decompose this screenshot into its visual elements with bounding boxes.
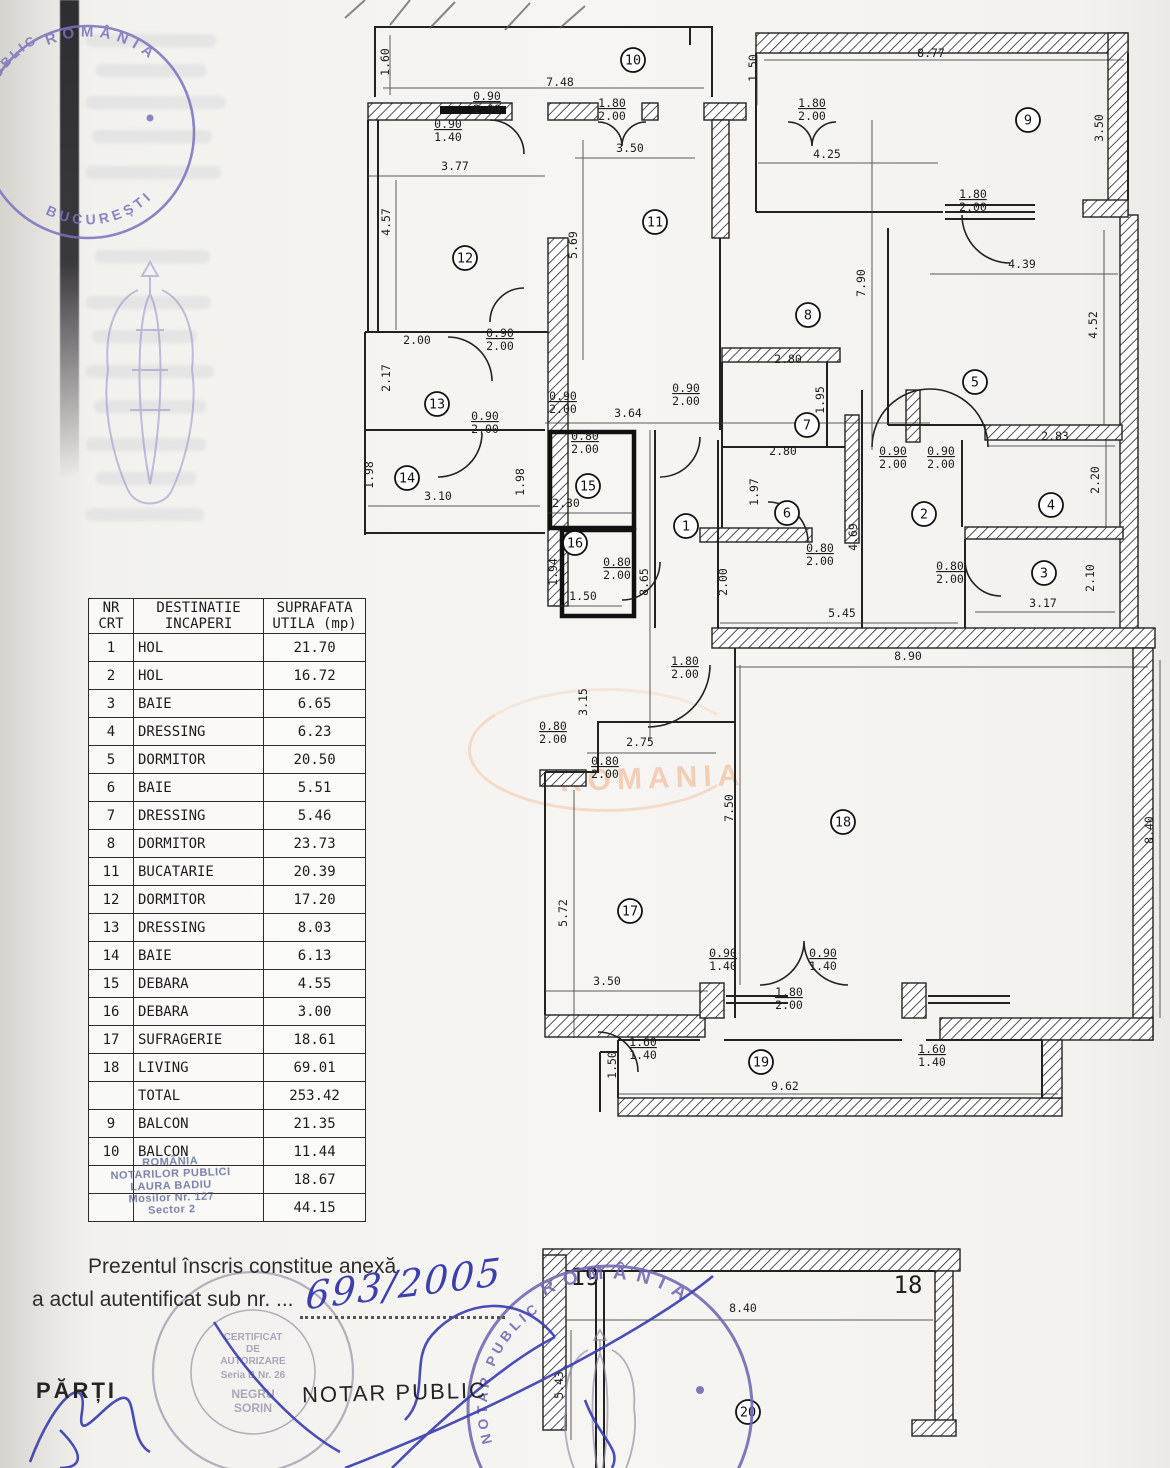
cell-dest: BAIE: [134, 942, 264, 970]
cell-nr: 18: [89, 1054, 134, 1082]
dotted-line: [300, 1316, 505, 1319]
cell-area: 18.61: [264, 1026, 366, 1054]
notary-stamp-top-left: ROMÂNIA NOTAR PUBLIC BUCUREȘTI: [0, 23, 194, 238]
cell-area: 5.51: [264, 774, 366, 802]
table-row: 18LIVING69.01: [89, 1054, 366, 1082]
cell-dest: DRESSING: [134, 914, 264, 942]
cell-nr: 2: [89, 662, 134, 690]
table-row: 11BUCATARIE20.39: [89, 858, 366, 886]
col-header-suprafata: SUPRAFATAUTILA (mp): [264, 599, 366, 634]
col-header-destinatie: DESTINATIEINCAPERI: [134, 599, 264, 634]
table-row: 12DORMITOR17.20: [89, 886, 366, 914]
cell-area: 21.70: [264, 634, 366, 662]
stamp-text-bucuresti: BUCUREȘTI: [44, 187, 156, 227]
table-row: 2HOL16.72: [89, 662, 366, 690]
table-row: TOTAL253.42: [89, 1082, 366, 1110]
cell-nr: 16: [89, 998, 134, 1026]
cell-dest: TOTAL: [134, 1082, 264, 1110]
cell-area: 20.39: [264, 858, 366, 886]
annex-note-line2: a actul autentificat sub nr. ...: [32, 1288, 294, 1312]
cell-area: 3.00: [264, 998, 366, 1026]
table-row: 16DEBARA3.00: [89, 998, 366, 1026]
col-header-nr: NRCRT: [89, 599, 134, 634]
cell-nr: 5: [89, 746, 134, 774]
table-header-row: NRCRT DESTINATIEINCAPERI SUPRAFATAUTILA …: [89, 599, 366, 634]
scanned-notary-floorplan-page: { "colors":{"stamp_purple":"#7a71bd","in…: [0, 0, 1170, 1468]
cell-area: 6.65: [264, 690, 366, 718]
stamp-text-notar: NOTAR PUBLIC: [0, 32, 40, 156]
cert-line: SORIN: [234, 1401, 272, 1415]
cert-line: DE: [246, 1344, 260, 1355]
parti-label: PĂRȚI: [36, 1378, 117, 1404]
cell-nr: 7: [89, 802, 134, 830]
cell-dest: HOL: [134, 634, 264, 662]
cell-area: 253.42: [264, 1082, 366, 1110]
cell-dest: BALCON: [134, 1110, 264, 1138]
cert-line: AUTORIZARE: [220, 1356, 286, 1367]
svg-text:ROMÂNIA: ROMÂNIA: [537, 1261, 698, 1309]
table-row: 8DORMITOR23.73: [89, 830, 366, 858]
svg-text:NOTAR PUBLIC: NOTAR PUBLIC: [474, 1299, 543, 1446]
cell-nr: 11: [89, 858, 134, 886]
table-row: 3BAIE6.65: [89, 690, 366, 718]
table-row: 1HOL21.70: [89, 634, 366, 662]
cell-area: 5.46: [264, 802, 366, 830]
cell-area: 8.03: [264, 914, 366, 942]
cell-dest: DRESSING: [134, 802, 264, 830]
cell-nr: 1: [89, 634, 134, 662]
cell-area: 17.20: [264, 886, 366, 914]
cell-dest: SUFRAGERIE: [134, 1026, 264, 1054]
cell-nr: 17: [89, 1026, 134, 1054]
cell-dest: HOL: [134, 662, 264, 690]
cell-dest: DORMITOR: [134, 886, 264, 914]
table-row: 6BAIE5.51: [89, 774, 366, 802]
areas-table: NRCRT DESTINATIEINCAPERI SUPRAFATAUTILA …: [88, 598, 366, 1222]
cell-area: 6.13: [264, 942, 366, 970]
stamp-text-notar: NOTAR PUBLIC: [474, 1299, 543, 1446]
table-row: 13DRESSING8.03: [89, 914, 366, 942]
cell-nr: 9: [89, 1110, 134, 1138]
table-row: 17SUFRAGERIE18.61: [89, 1026, 366, 1054]
stamp-text-romania: ROMÂNIA: [537, 1261, 698, 1309]
table-row: 14BAIE6.13: [89, 942, 366, 970]
cell-area: 16.72: [264, 662, 366, 690]
cell-area: 23.73: [264, 830, 366, 858]
cell-nr: 4: [89, 718, 134, 746]
cell-nr: 12: [89, 886, 134, 914]
table-row: 4DRESSING6.23: [89, 718, 366, 746]
cell-nr: 15: [89, 970, 134, 998]
table-overlay-stamp: ROMÂNIA NOTARILOR PUBLICI LAURA BADIU Mo…: [55, 1152, 287, 1220]
cell-dest: BAIE: [134, 774, 264, 802]
table-row: 9BALCON21.35: [89, 1110, 366, 1138]
table-row: 15DEBARA4.55: [89, 970, 366, 998]
cell-nr: 14: [89, 942, 134, 970]
table-row: 7DRESSING5.46: [89, 802, 366, 830]
cell-dest: DEBARA: [134, 998, 264, 1026]
cell-dest: BUCATARIE: [134, 858, 264, 886]
cell-nr: 3: [89, 690, 134, 718]
cell-nr: [89, 1082, 134, 1110]
svg-text:NOTAR PUBLIC: NOTAR PUBLIC: [0, 32, 40, 156]
cell-area: 21.35: [264, 1110, 366, 1138]
svg-text:BUCUREȘTI: BUCUREȘTI: [44, 187, 156, 227]
cell-dest: DORMITOR: [134, 746, 264, 774]
cell-area: 6.23: [264, 718, 366, 746]
table-row: 5DORMITOR20.50: [89, 746, 366, 774]
cert-line: CERTIFICAT: [224, 1332, 283, 1343]
cell-dest: BAIE: [134, 690, 264, 718]
cell-nr: 6: [89, 774, 134, 802]
cell-dest: DEBARA: [134, 970, 264, 998]
cell-dest: LIVING: [134, 1054, 264, 1082]
cell-area: 69.01: [264, 1054, 366, 1082]
coat-of-arms-eagle: [106, 262, 193, 504]
cell-area: 20.50: [264, 746, 366, 774]
cell-area: 4.55: [264, 970, 366, 998]
cell-dest: DORMITOR: [134, 830, 264, 858]
cell-dest: DRESSING: [134, 718, 264, 746]
cell-nr: 13: [89, 914, 134, 942]
notar-public-label: NOTAR PUBLIC: [302, 1378, 488, 1409]
cell-nr: 8: [89, 830, 134, 858]
